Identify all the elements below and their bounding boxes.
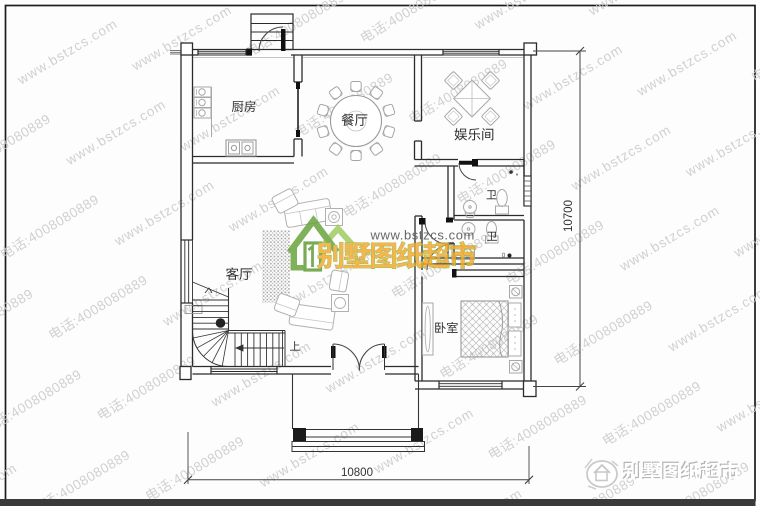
svg-text:www.bstzcs.com: www.bstzcs.com <box>568 122 674 194</box>
svg-text:www.bstzcs.com: www.bstzcs.com <box>111 177 217 249</box>
svg-text::4008080889: :4008080889 <box>22 192 102 248</box>
svg-text:www.bstzcs.com: www.bstzcs.com <box>713 364 760 436</box>
svg-text::4008080889: :4008080889 <box>167 433 247 489</box>
svg-text:www.bstzcs.com: www.bstzcs.com <box>665 283 760 355</box>
svg-text:www.bstzcs.com: www.bstzcs.com <box>322 324 428 396</box>
svg-text:10800: 10800 <box>341 467 373 479</box>
svg-text::4008080889: :4008080889 <box>4 367 84 423</box>
svg-text::4008080889: :4008080889 <box>0 111 53 167</box>
svg-text::4008080889: :4008080889 <box>70 272 150 328</box>
svg-text:www.bstzcs.com: www.bstzcs.com <box>682 108 760 180</box>
svg-text::4008080889: :4008080889 <box>364 150 444 206</box>
svg-text::4008080889: :4008080889 <box>267 0 347 45</box>
svg-text::4008080889: :4008080889 <box>118 353 198 409</box>
svg-text:www.bstzcs.com: www.bstzcs.com <box>616 202 722 274</box>
svg-text:www.bstzcs.com: www.bstzcs.com <box>370 228 475 243</box>
svg-text:10700: 10700 <box>563 200 575 232</box>
svg-text::4008080889: :4008080889 <box>53 447 133 503</box>
svg-text:www.bstzcs.com: www.bstzcs.com <box>14 16 120 88</box>
svg-text:www.bstzcs.com: www.bstzcs.com <box>370 405 476 477</box>
svg-text::4008080889: :4008080889 <box>575 298 655 354</box>
svg-text::4008080889: :4008080889 <box>624 378 704 434</box>
svg-text::4008080889: :4008080889 <box>509 392 589 448</box>
svg-text:www.bstzcs.com: www.bstzcs.com <box>634 28 740 100</box>
svg-text::4008080889: :4008080889 <box>478 136 558 192</box>
svg-text:www.bstzcs.com: www.bstzcs.com <box>62 97 168 169</box>
svg-text:www.bstzcs.com: www.bstzcs.com <box>585 0 691 19</box>
